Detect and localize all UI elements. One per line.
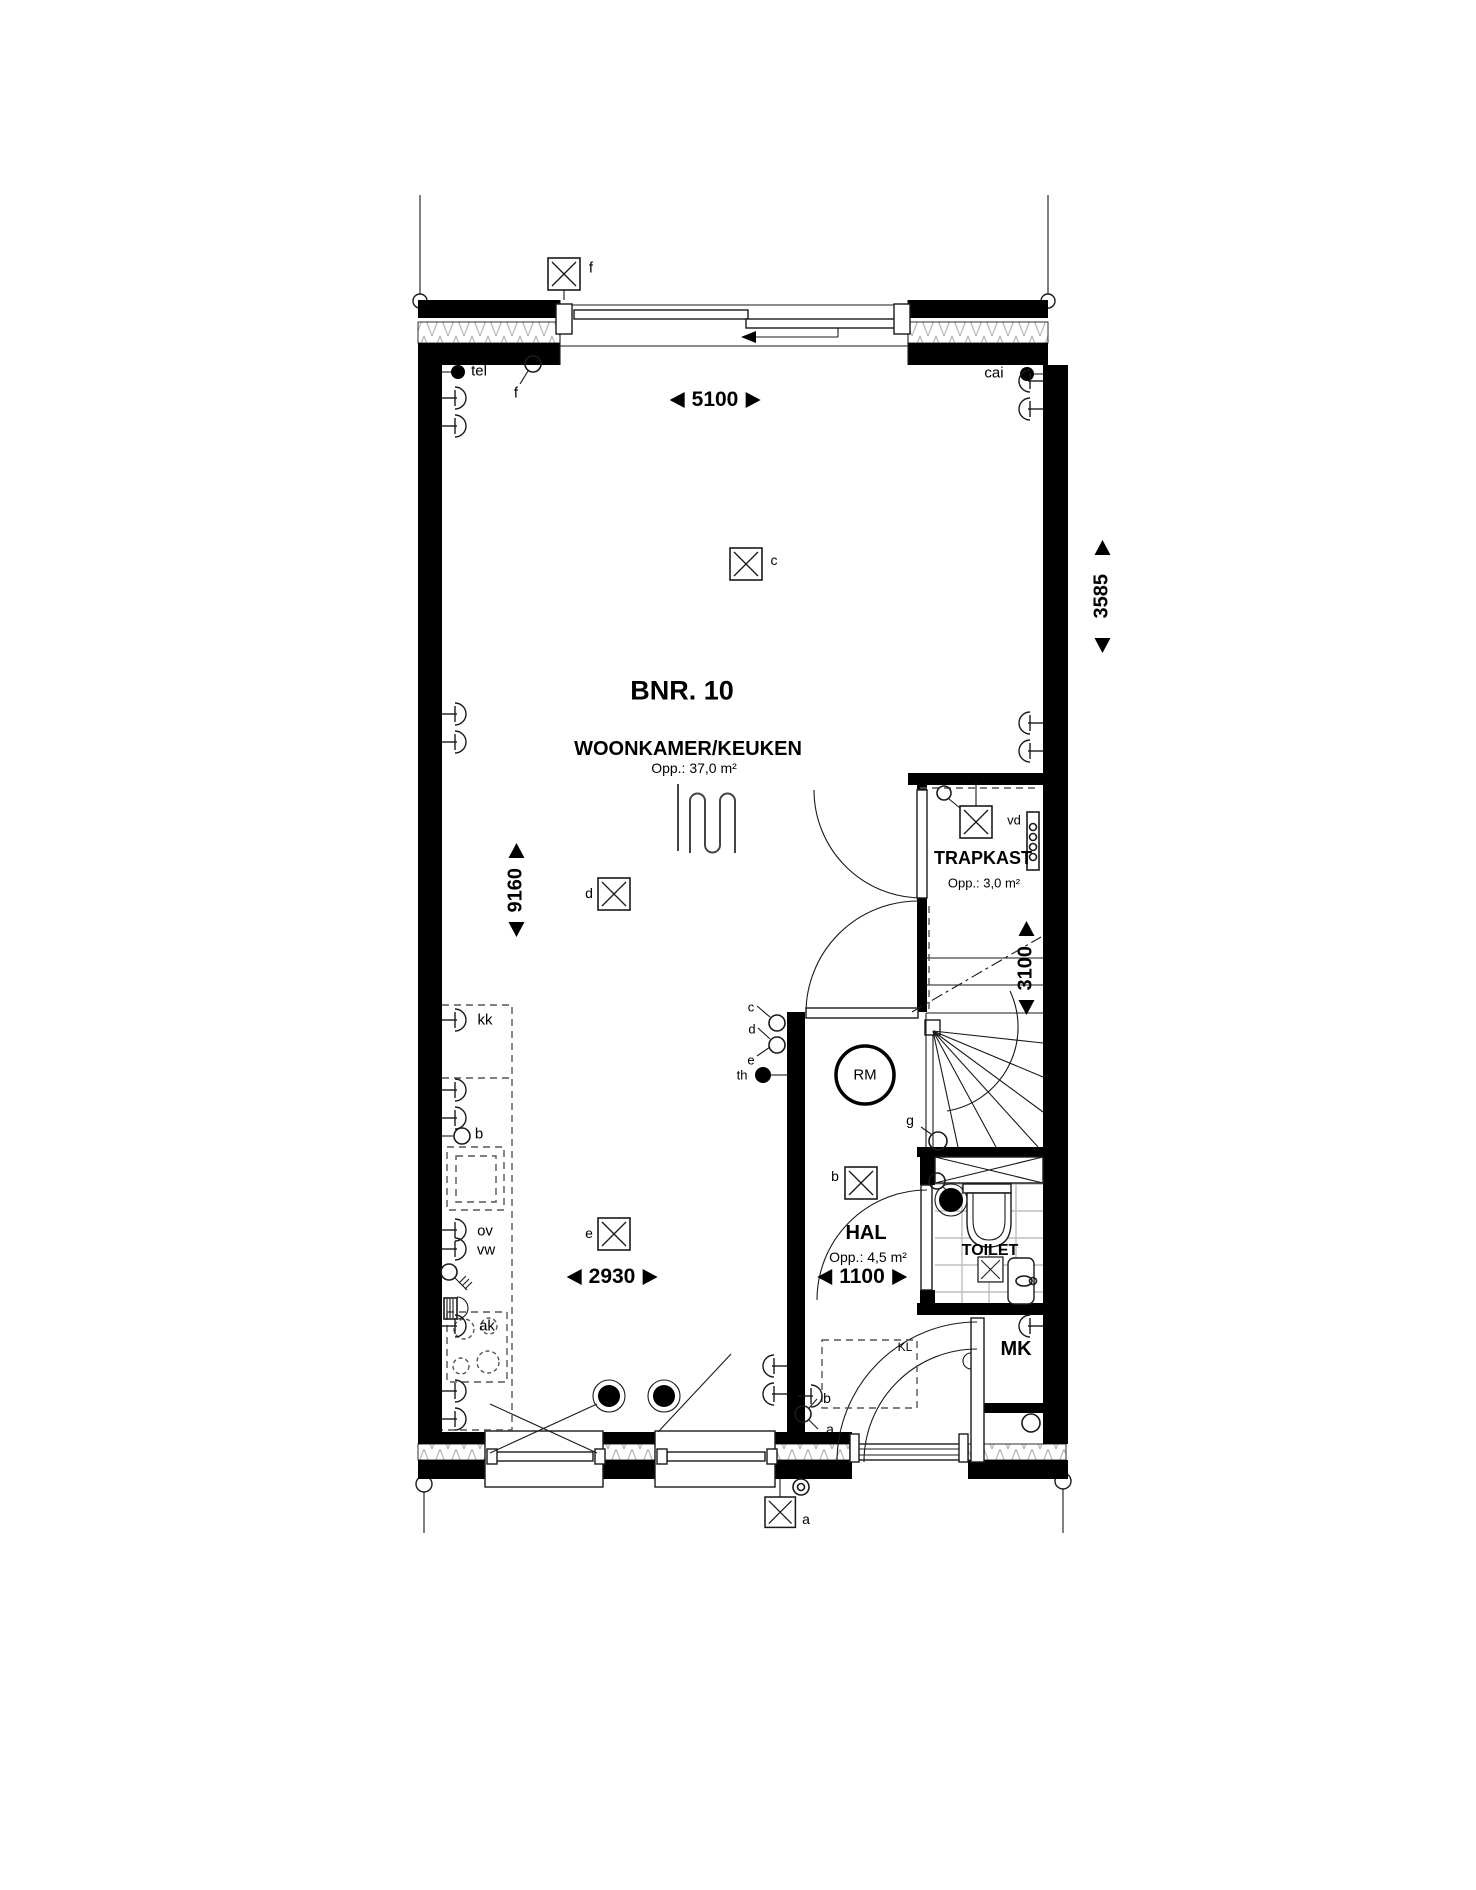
dim-arrow-up-icon [1018,921,1034,936]
dimension-top-width: 5100 [670,388,761,412]
dim-arrow-left-icon [567,1269,582,1285]
socket-vw-label: vw [477,1243,495,1258]
dim-arrow-down-icon [1018,1000,1034,1015]
switch-a-hal-label: a [826,1422,834,1436]
thermostat-label: th [737,1069,748,1082]
ceiling-light-c-label: c [771,553,778,567]
socket-ov-label: ov [477,1224,493,1239]
socket-b-hal-label: b [823,1391,831,1405]
switch-c-label: c [748,1001,755,1014]
ceiling-light-d-label: d [585,886,593,900]
dimension-right-upper-height: 3585 [1091,540,1114,653]
room-living-name: WOONKAMER/KEUKEN [574,739,802,759]
dimension-left-height: 9160 [505,843,528,937]
room-meterkast-name: MK [1000,1339,1031,1359]
room-trapkast-area: Opp.: 3,0 m² [948,877,1020,890]
ceiling-light-f-label: f [589,261,593,276]
ceiling-light-e-label: e [585,1226,593,1240]
ceiling-light-b-label: b [831,1169,839,1183]
cai-outlet-label: cai [984,366,1003,381]
switch-d-label: d [748,1023,755,1036]
exterior-light-a-label: a [802,1512,810,1526]
socket-kk-label: kk [478,1013,493,1028]
room-trapkast-name: TRAPKAST [934,849,1032,867]
dim-arrow-up-icon [1094,540,1110,555]
dim-arrow-left-icon [670,392,685,408]
room-hal-name: HAL [845,1223,886,1243]
dim-stair-depth-value: 3100 [1015,946,1038,991]
switch-g-label: g [906,1113,914,1127]
dim-top-width-value: 5100 [692,388,739,412]
floor-heating-manifold [678,784,735,853]
electrical-symbols [441,258,1043,1527]
tel-outlet-label: tel [471,364,487,379]
room-hal-area: Opp.: 4,5 m² [829,1250,907,1264]
dim-arrow-right-icon [892,1269,907,1285]
smoke-detector-label: RM [853,1068,876,1083]
switch-f-label: f [514,386,518,401]
sliding-door [556,304,910,346]
dim-kitchen-width-value: 2930 [589,1265,636,1289]
dim-left-height-value: 9160 [505,868,528,913]
unit-number: BNR. 10 [630,678,734,705]
dim-arrow-left-icon [817,1269,832,1285]
dim-arrow-up-icon [508,843,524,858]
crawl-hatch-kl-label: KL [898,1341,913,1353]
dim-right-upper-value: 3585 [1091,574,1114,619]
boiler-b-label: b [475,1127,483,1142]
dim-arrow-right-icon [745,392,760,408]
room-toilet-name: TOILET [962,1243,1019,1259]
switch-e-label: e [747,1054,754,1067]
dimension-hal-width: 1100 [817,1265,907,1289]
dim-arrow-down-icon [1094,638,1110,653]
interior-walls [787,773,1043,1432]
toilet-fixtures [929,1157,1043,1432]
floorplan-linework [0,0,1476,1890]
cooktop-ak-label: ak [479,1319,495,1334]
floorplan-page: BNR. 10 WOONKAMER/KEUKEN Opp.: 37,0 m² T… [0,0,1476,1890]
distributor-vd-label: vd [1007,814,1021,827]
dimension-kitchen-width: 2930 [567,1265,658,1289]
dim-arrow-right-icon [642,1269,657,1285]
kitchen-counter [442,1005,917,1430]
dim-hal-width-value: 1100 [839,1265,885,1289]
room-living-area: Opp.: 37,0 m² [651,761,737,775]
dimension-stair-depth: 3100 [1015,921,1038,1015]
dim-arrow-down-icon [508,922,524,937]
